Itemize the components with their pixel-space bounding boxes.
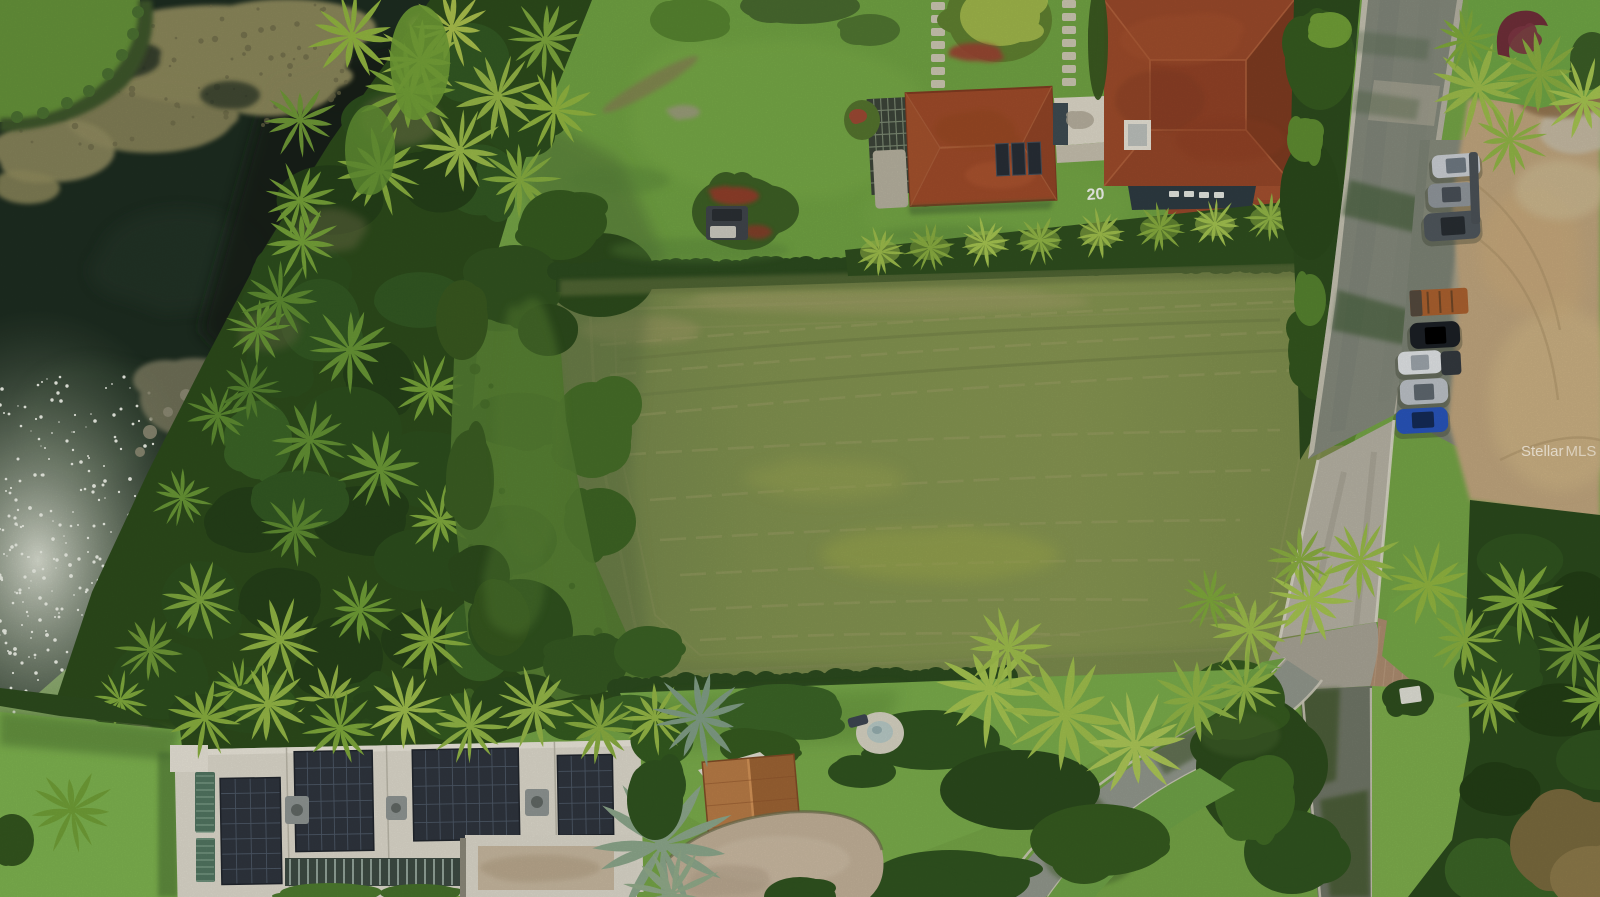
svg-text:StellarMLS: StellarMLS [1521, 443, 1596, 460]
